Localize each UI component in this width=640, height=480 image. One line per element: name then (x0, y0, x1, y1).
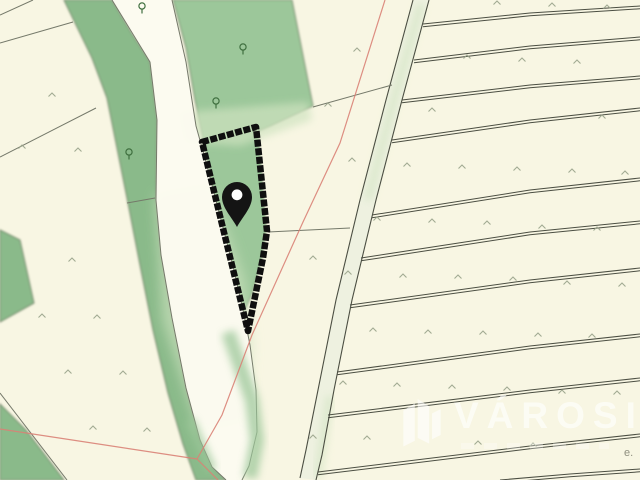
parcel-edge-label: e. (624, 447, 633, 459)
map-viewport[interactable]: VÁROSI e. (0, 0, 640, 480)
map-canvas[interactable] (0, 0, 640, 480)
